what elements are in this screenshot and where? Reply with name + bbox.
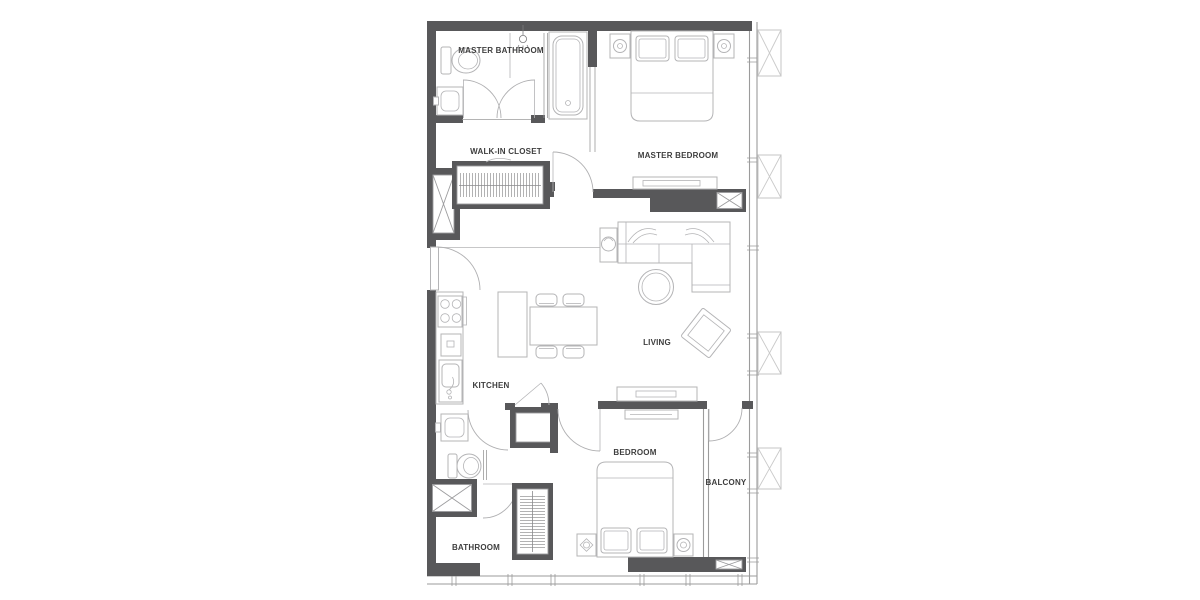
room-kitchen: KITCHEN bbox=[436, 292, 597, 405]
tv-console bbox=[633, 177, 717, 189]
wardrobe-with-hangers bbox=[512, 483, 553, 560]
nightstand-right bbox=[674, 534, 693, 556]
room-label-kitchen: KITCHEN bbox=[473, 381, 510, 390]
bedroom-door bbox=[558, 409, 600, 451]
closet-door bbox=[553, 152, 593, 192]
room-walk-in-closet: WALK-IN CLOSET bbox=[452, 147, 593, 209]
room-label-living: LIVING bbox=[643, 338, 671, 347]
dresser bbox=[625, 410, 678, 419]
nightstand-left bbox=[610, 34, 630, 58]
side-table-with-plant bbox=[600, 228, 617, 262]
room-label-balcony: BALCONY bbox=[706, 478, 747, 487]
built-in-appliance bbox=[441, 334, 461, 356]
bed bbox=[597, 462, 673, 557]
floor-plan-drawing: MASTER BATHROOM WALK-IN CLOSET bbox=[0, 0, 1200, 600]
exterior-ac-boxes bbox=[758, 30, 781, 489]
hall-arc bbox=[468, 410, 508, 450]
floor-plan-canvas: MASTER BATHROOM WALK-IN CLOSET bbox=[0, 0, 1200, 600]
ac-unit-box bbox=[758, 30, 781, 76]
entrance-door bbox=[431, 247, 481, 290]
room-master-bedroom: MASTER BEDROOM bbox=[610, 31, 734, 189]
ac-unit-box bbox=[758, 332, 781, 374]
room-label-bedroom: BEDROOM bbox=[613, 448, 656, 457]
nightstand-right bbox=[714, 34, 734, 58]
room-label-master-bathroom: MASTER BATHROOM bbox=[458, 46, 544, 55]
dining-table-set bbox=[530, 294, 597, 358]
room-balcony: BALCONY bbox=[706, 408, 747, 487]
bed bbox=[631, 31, 713, 121]
room-master-bathroom: MASTER BATHROOM bbox=[434, 25, 588, 119]
room-bathroom: BATHROOM bbox=[427, 410, 517, 552]
washbasin bbox=[434, 87, 464, 115]
kitchen-sink bbox=[439, 360, 462, 402]
double-swing-door bbox=[463, 80, 535, 118]
round-coffee-table bbox=[639, 270, 674, 305]
washbasin bbox=[436, 414, 469, 441]
l-shaped-sofa bbox=[618, 222, 730, 292]
balcony-door bbox=[709, 408, 742, 441]
lounge-chair bbox=[681, 308, 732, 359]
ac-unit-box bbox=[758, 448, 781, 489]
cooktop bbox=[438, 296, 467, 327]
room-label-walk-in-closet: WALK-IN CLOSET bbox=[470, 147, 542, 156]
kitchen-island bbox=[498, 292, 527, 357]
toilet bbox=[448, 454, 481, 478]
room-label-master-bedroom: MASTER BEDROOM bbox=[638, 151, 719, 160]
bathroom-door bbox=[483, 484, 517, 518]
tv-console bbox=[617, 387, 697, 401]
shower bbox=[427, 479, 477, 517]
ac-unit-box bbox=[758, 155, 781, 198]
hall-door bbox=[515, 383, 549, 405]
nightstand-left bbox=[577, 534, 596, 556]
room-living: LIVING bbox=[600, 222, 731, 401]
wardrobe-with-hangers bbox=[452, 158, 555, 209]
bathtub bbox=[549, 32, 587, 119]
room-label-bathroom: BATHROOM bbox=[452, 543, 500, 552]
